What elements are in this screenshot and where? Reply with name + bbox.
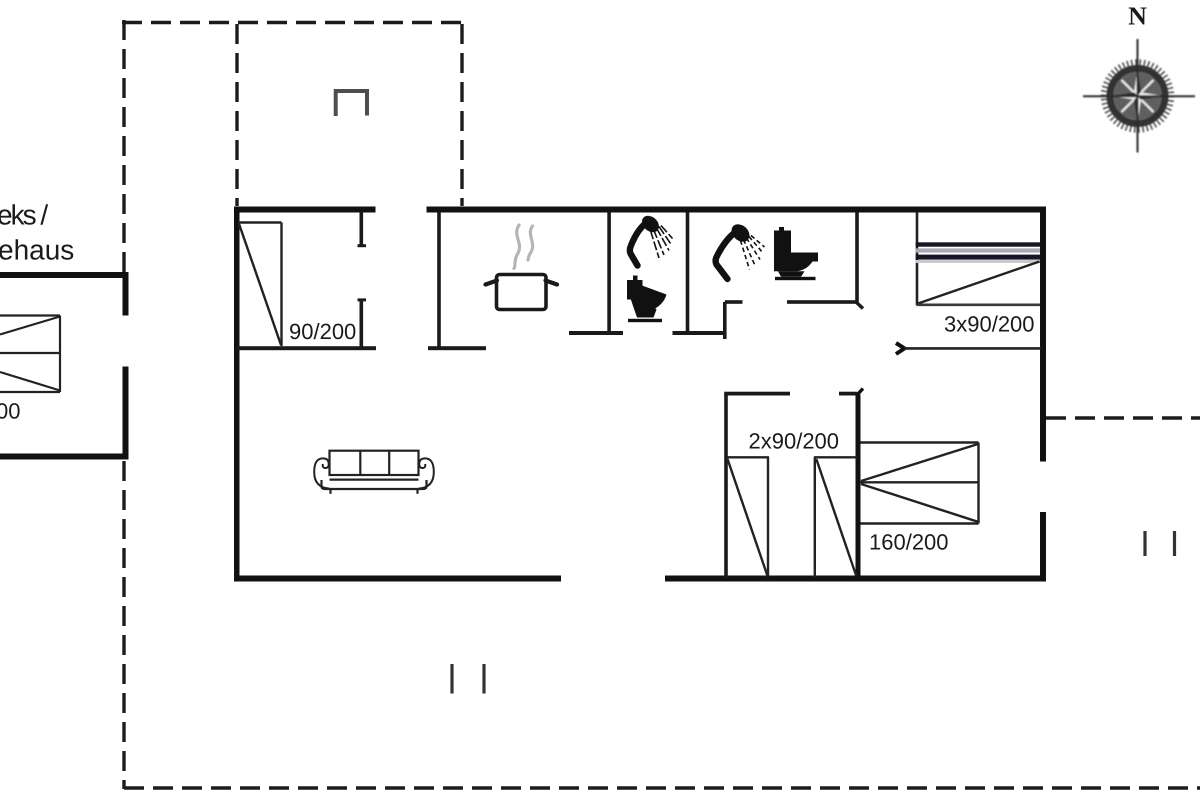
svg-text:3x90/200: 3x90/200 <box>944 312 1035 337</box>
svg-text:eks /: eks / <box>0 200 48 231</box>
svg-text:00: 00 <box>0 399 20 424</box>
svg-text:2x90/200: 2x90/200 <box>749 429 840 454</box>
svg-text:90/200: 90/200 <box>289 319 356 344</box>
svg-text:N: N <box>1128 2 1147 31</box>
svg-text:ehaus: ehaus <box>0 235 74 266</box>
svg-text:160/200: 160/200 <box>869 530 949 555</box>
